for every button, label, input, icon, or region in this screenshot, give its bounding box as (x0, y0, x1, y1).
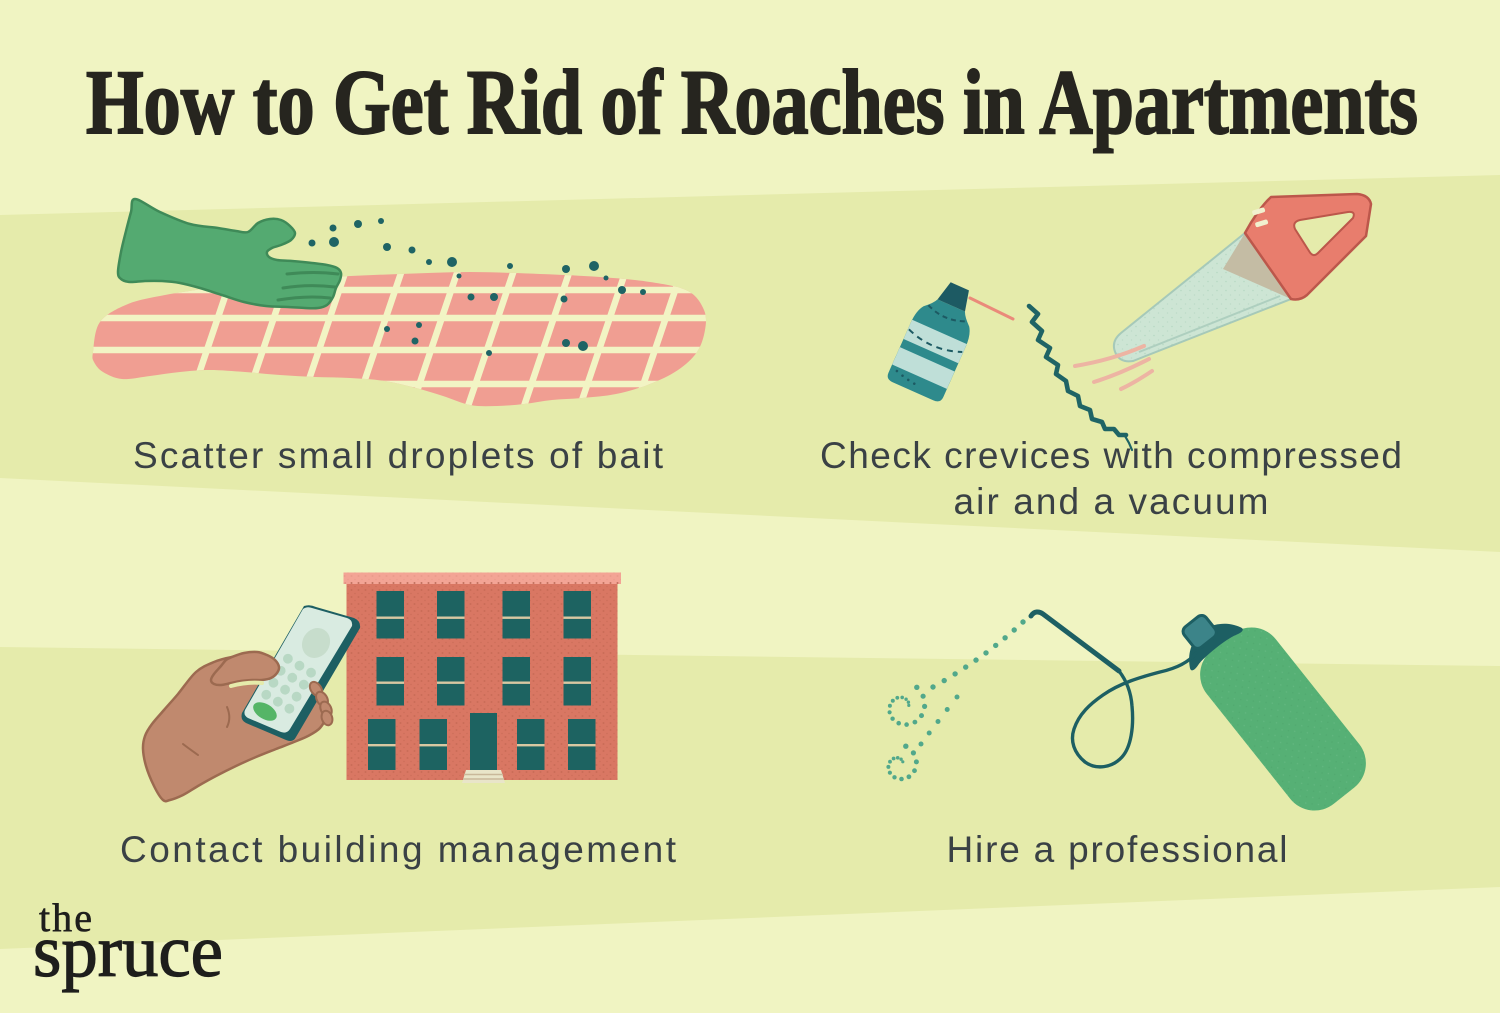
svg-text:Scatter small droplets of bait: Scatter small droplets of bait (133, 435, 664, 476)
svg-text:Contact building management: Contact building management (120, 829, 677, 870)
svg-text:spruce: spruce (33, 911, 223, 993)
svg-text:How to Get Rid of Roaches in A: How to Get Rid of Roaches in Apartments (86, 51, 1418, 153)
svg-text:Check crevices with compressed: Check crevices with compressed (820, 435, 1402, 476)
svg-text:air and a vacuum: air and a vacuum (954, 481, 1269, 522)
